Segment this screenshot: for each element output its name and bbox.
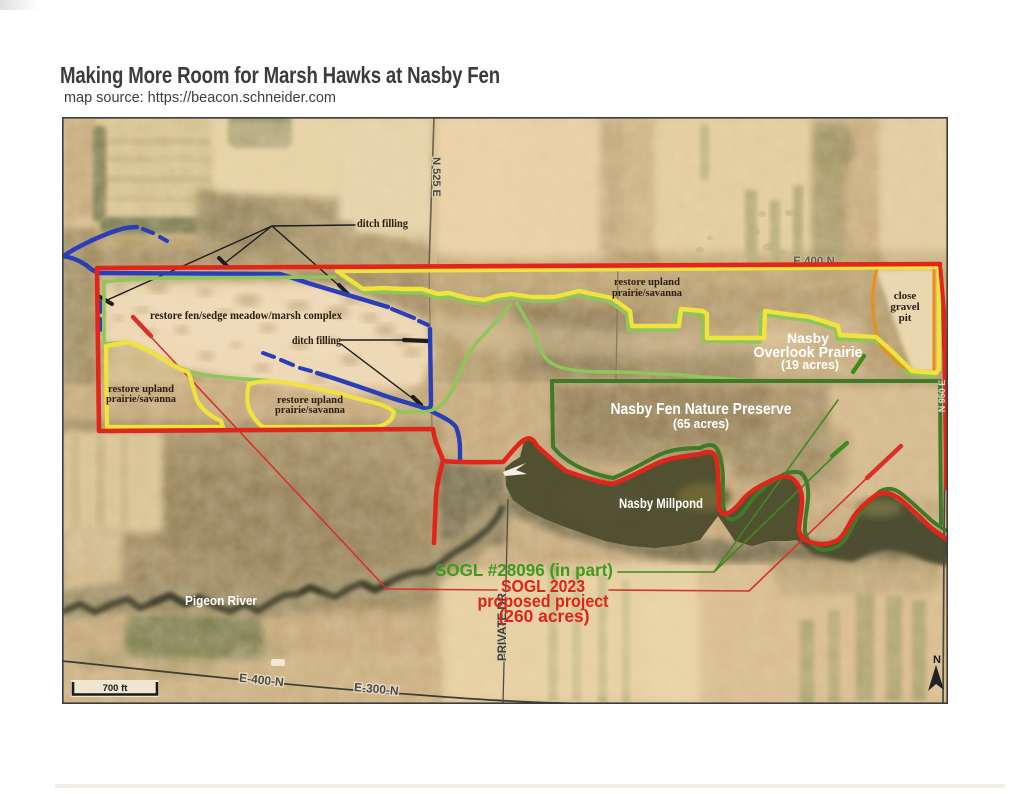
svg-text:(65 acres): (65 acres) bbox=[673, 416, 729, 431]
svg-text:ditch filling: ditch filling bbox=[292, 335, 341, 347]
svg-text:pit: pit bbox=[899, 312, 912, 324]
svg-text:Nasby Millpond: Nasby Millpond bbox=[619, 496, 703, 511]
svg-text:prairie/savanna: prairie/savanna bbox=[275, 404, 346, 416]
svg-text:(19 acres): (19 acres) bbox=[781, 358, 839, 372]
svg-text:prairie/savanna: prairie/savanna bbox=[106, 393, 177, 405]
svg-text:Pigeon River: Pigeon River bbox=[185, 593, 257, 608]
svg-text:(260 acres): (260 acres) bbox=[499, 606, 590, 626]
svg-text:N 525 E: N 525 E bbox=[430, 157, 442, 197]
svg-text:700 ft: 700 ft bbox=[103, 683, 129, 694]
svg-text:restore fen/sedge meadow/marsh: restore fen/sedge meadow/marsh complex bbox=[150, 308, 342, 322]
svg-text:N: N bbox=[933, 654, 941, 666]
svg-text:ditch filling: ditch filling bbox=[357, 218, 408, 230]
svg-text:N 950 E: N 950 E bbox=[937, 380, 947, 413]
svg-text:prairie/savanna: prairie/savanna bbox=[612, 287, 683, 299]
